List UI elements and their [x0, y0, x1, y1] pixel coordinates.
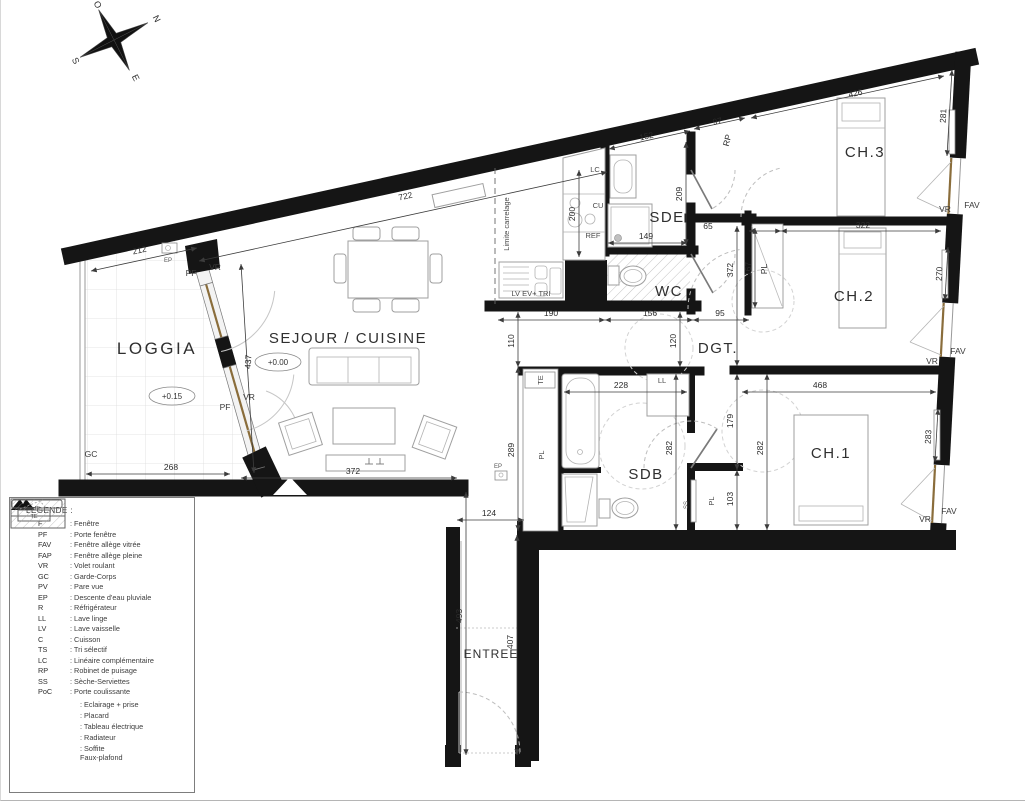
- svg-text:372: 372: [346, 466, 360, 476]
- dim-124: 124: [457, 508, 524, 520]
- dim-407: 407: [505, 535, 517, 755]
- fav-label-ch2: FAV: [950, 346, 966, 356]
- towel-radiator: [691, 480, 696, 522]
- armchair: [412, 415, 457, 459]
- wc-fixtures: [608, 266, 646, 286]
- coffee-table: [333, 408, 395, 444]
- wc-door-leaf: [691, 254, 713, 293]
- svg-text:152: 152: [638, 130, 654, 143]
- lc-label: LC: [590, 165, 600, 174]
- room-label-ch3: CH.3: [845, 144, 885, 161]
- svg-text:468: 468: [813, 380, 827, 390]
- legend-row: EP : Descente d'eau pluviale: [10, 593, 194, 604]
- legend-row: R : Réfrigérateur: [10, 603, 194, 614]
- armchair: [279, 412, 323, 455]
- svg-text:167: 167: [743, 262, 753, 276]
- ss-label: SS: [684, 501, 690, 509]
- bathtub: [562, 374, 599, 468]
- cu-label: CU: [593, 201, 604, 210]
- ep-label-bottom: EP: [494, 464, 502, 470]
- svg-text:437: 437: [243, 354, 254, 369]
- legend-row: PF : Porte fenêtre: [10, 530, 194, 541]
- svg-text:322: 322: [856, 220, 870, 230]
- lv-ev-tri-label: LV EV+ TRI: [511, 289, 550, 298]
- svg-text:493: 493: [454, 609, 464, 623]
- sdb-door-leaf: [691, 429, 717, 468]
- legend-row: FAV : Fenêtre allège vitrée: [10, 540, 194, 551]
- svg-text:289: 289: [506, 443, 516, 457]
- legend-row: LL : Lave linge: [10, 614, 194, 625]
- compass-o: O: [92, 0, 104, 10]
- legend-symbol-radiateur: : Radiateur: [20, 733, 194, 742]
- gc-label: GC: [85, 449, 98, 459]
- svg-text:281: 281: [938, 108, 949, 123]
- dim-179: 179: [725, 374, 737, 470]
- dim-282-ch1: 282: [755, 374, 767, 530]
- vr-label-ch1: VR: [919, 514, 931, 524]
- dining-table: [348, 241, 428, 298]
- legend-symbol-soffite: : Soffite Faux-plafond: [20, 744, 194, 762]
- vr-label-1: VR: [209, 262, 221, 272]
- svg-text:124: 124: [482, 508, 496, 518]
- room-label-loggia: LOGGIA: [117, 339, 197, 358]
- doors: [221, 168, 781, 753]
- ep-label-top: EP: [164, 258, 172, 264]
- svg-text:270: 270: [934, 266, 945, 281]
- legend-symbol-eclairage: : Eclairage + prise: [20, 700, 194, 709]
- limite-carrelage-label: Limite carrelage: [502, 197, 511, 250]
- room-label-entree: ENTREE: [464, 647, 519, 661]
- svg-text:95: 95: [715, 308, 725, 318]
- compass-n: N: [151, 13, 163, 23]
- legend-symbol-tableau: TE : Tableau électrique: [20, 722, 194, 731]
- legend-row: VR : Volet roulant: [10, 561, 194, 572]
- ch2-bed: [839, 228, 886, 328]
- svg-text:372: 372: [725, 263, 735, 277]
- sofa: [309, 348, 419, 385]
- compass-rose: N E S O: [70, 0, 163, 83]
- tv-bench: [326, 455, 405, 471]
- vr-label-ch2: VR: [926, 356, 938, 366]
- fav-label-ch3: FAV: [964, 200, 980, 210]
- washing-machine: [647, 374, 689, 416]
- svg-text:209: 209: [674, 187, 684, 201]
- svg-text:65: 65: [703, 221, 713, 231]
- room-label-sdb: SDB: [628, 466, 663, 483]
- legend-panel: LEGENDE : F : Fenêtre PF : Porte fenêtre…: [9, 497, 195, 793]
- level-sejour: +0.00: [268, 358, 289, 367]
- svg-text:120: 120: [668, 334, 678, 348]
- legend-row: FAP : Fenêtre allège pleine: [10, 551, 194, 562]
- kitchen-duct-wall: [565, 260, 607, 306]
- wc-toilet-tank: [608, 266, 619, 285]
- legend-row: LC : Linéaire complémentaire: [10, 656, 194, 667]
- fav-label-ch1: FAV: [941, 506, 957, 516]
- ch1-bed: [794, 415, 868, 525]
- dim-209: 209: [674, 142, 686, 245]
- room-label-sejour: SEJOUR / CUISINE: [269, 330, 427, 347]
- sejour-furniture: [279, 184, 486, 471]
- ch1-closet: PL: [707, 496, 716, 505]
- entry-door-arc: [459, 692, 520, 753]
- dim-289: 289: [506, 367, 518, 531]
- room-label-sde: SDE: [649, 209, 684, 226]
- svg-text:110: 110: [506, 334, 516, 348]
- room-label-dgt: DGT.: [698, 340, 738, 357]
- ref-label: REF: [586, 231, 601, 240]
- legend-row: PV : Pare vue: [10, 582, 194, 593]
- svg-text:282: 282: [664, 441, 674, 455]
- ll-label: LL: [658, 376, 666, 385]
- legend-row: LV : Lave vaisselle: [10, 624, 194, 635]
- soffit-hatch-icon: [10, 498, 68, 530]
- compass-s: S: [70, 56, 82, 66]
- svg-text:149: 149: [639, 231, 653, 241]
- svg-text:282: 282: [755, 441, 765, 455]
- entry-closet: TE PL: [523, 369, 558, 531]
- vr-label-ch3: VR: [939, 204, 951, 214]
- level-loggia: +0.15: [162, 392, 183, 401]
- pl-label-ch1: PL: [707, 496, 716, 505]
- pf-label-1: PF: [186, 268, 197, 278]
- svg-text:228: 228: [614, 380, 628, 390]
- room-label-ch2: CH.2: [834, 288, 874, 305]
- pl-label-entry: PL: [537, 450, 546, 459]
- svg-text:722: 722: [397, 190, 413, 203]
- compass-e: E: [130, 73, 142, 83]
- pf-label-2: PF: [220, 402, 231, 412]
- svg-text:268: 268: [164, 462, 178, 472]
- legend-symbol-placard: PL : Placard: [20, 711, 194, 720]
- svg-text:283: 283: [923, 429, 934, 444]
- sde-door-arc: [712, 170, 735, 209]
- svg-text:190: 190: [544, 308, 558, 318]
- dim-103: 103: [725, 470, 737, 530]
- pl-label-ch2: PL: [759, 264, 769, 275]
- svg-text:156: 156: [643, 308, 657, 318]
- svg-text:200: 200: [567, 207, 577, 221]
- rp-label: RP: [721, 133, 734, 147]
- te-label: TE: [536, 375, 545, 385]
- svg-text:179: 179: [725, 414, 735, 428]
- floor-plan-page: TE PL PL FAV VR FAV VR FAV VR: [0, 0, 1025, 801]
- legend-row: TS : Tri sélectif: [10, 645, 194, 656]
- sideboard: [432, 184, 486, 208]
- legend-row: SS : Sèche-Serviettes: [10, 677, 194, 688]
- svg-text:103: 103: [725, 492, 735, 506]
- legend-row: RP : Robinet de puisage: [10, 666, 194, 677]
- legend-row: PoC : Porte coulissante: [10, 687, 194, 698]
- legend-row: C : Cuisson: [10, 635, 194, 646]
- room-label-wc: WC: [655, 283, 683, 300]
- legend-items: F : Fenêtre PF : Porte fenêtre FAV : Fen…: [10, 519, 194, 698]
- legend-row: GC : Garde-Corps: [10, 572, 194, 583]
- ch3-door-arc: [741, 168, 781, 217]
- room-label-ch1: CH.1: [811, 445, 851, 462]
- vr-label-2: VR: [243, 392, 255, 402]
- sdb-toilet-tank: [599, 499, 610, 518]
- dim-468: 468: [742, 380, 936, 392]
